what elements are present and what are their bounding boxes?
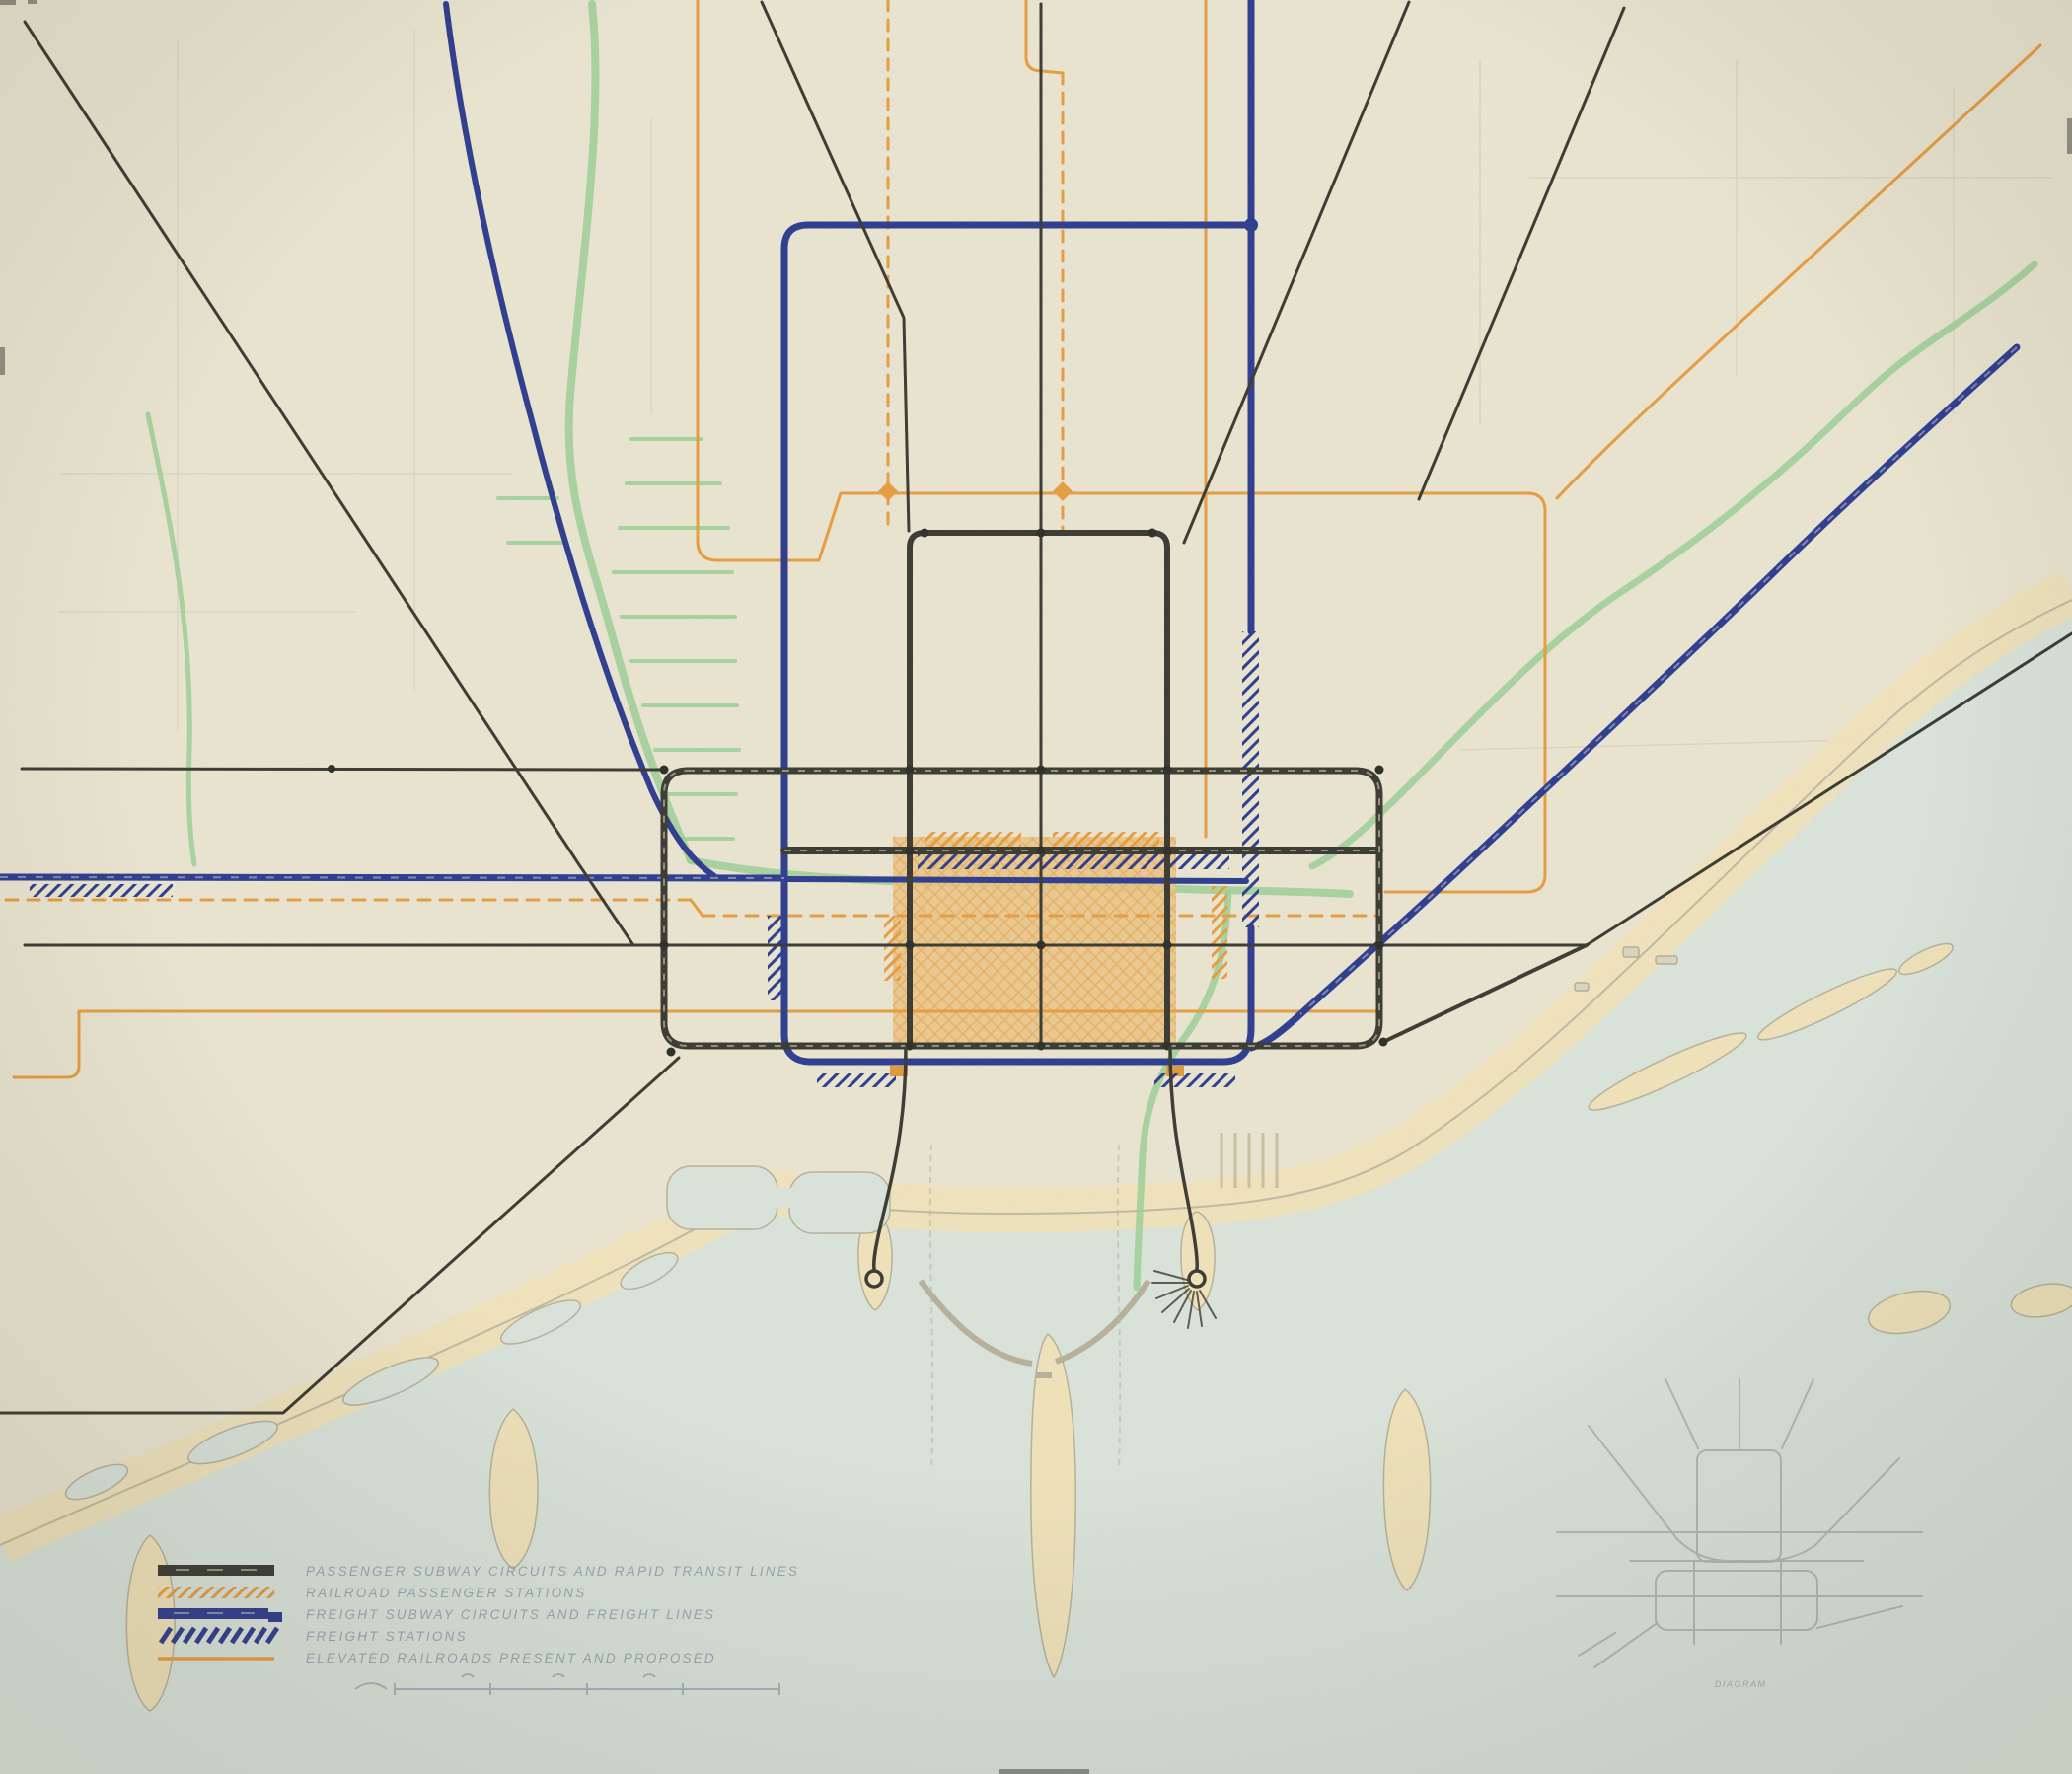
- vignette: [0, 0, 2072, 1774]
- map-page: DIAGRAM PASSENGER SUBWAY CIRCUITS AND RA…: [0, 0, 2072, 1774]
- transit-plan-map: DIAGRAM PASSENGER SUBWAY CIRCUITS AND RA…: [0, 0, 2072, 1774]
